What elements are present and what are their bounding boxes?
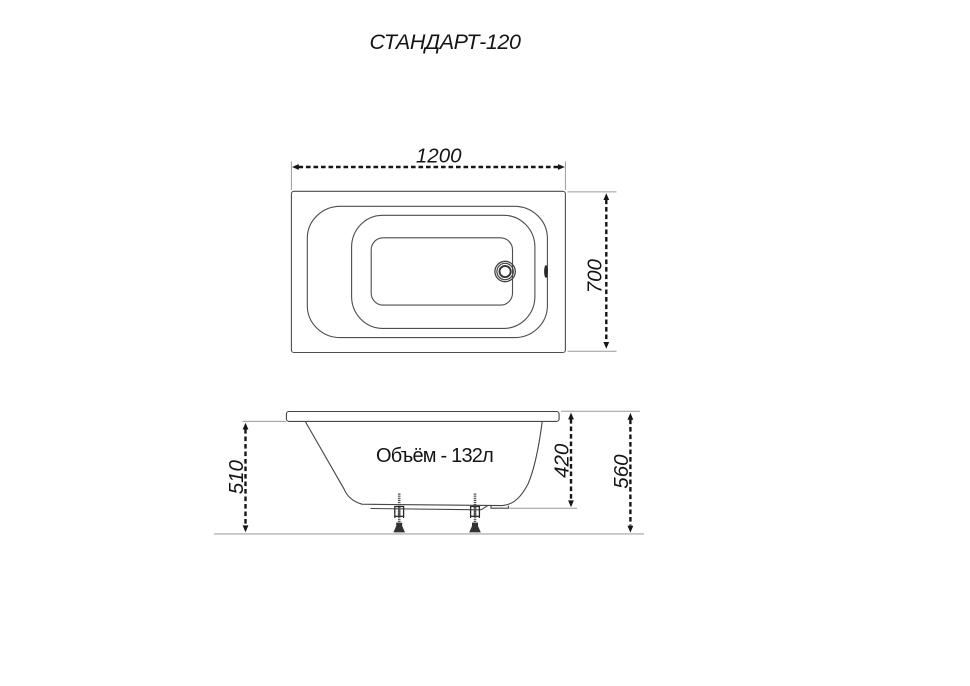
svg-text:510: 510 [225, 460, 248, 495]
svg-text:560: 560 [610, 454, 633, 489]
svg-text:СТАНДАРТ-120: СТАНДАРТ-120 [369, 30, 521, 54]
svg-text:420: 420 [551, 443, 574, 478]
svg-text:1200: 1200 [416, 144, 462, 167]
svg-text:Объём - 132л: Объём - 132л [376, 445, 493, 467]
svg-text:700: 700 [584, 259, 607, 294]
